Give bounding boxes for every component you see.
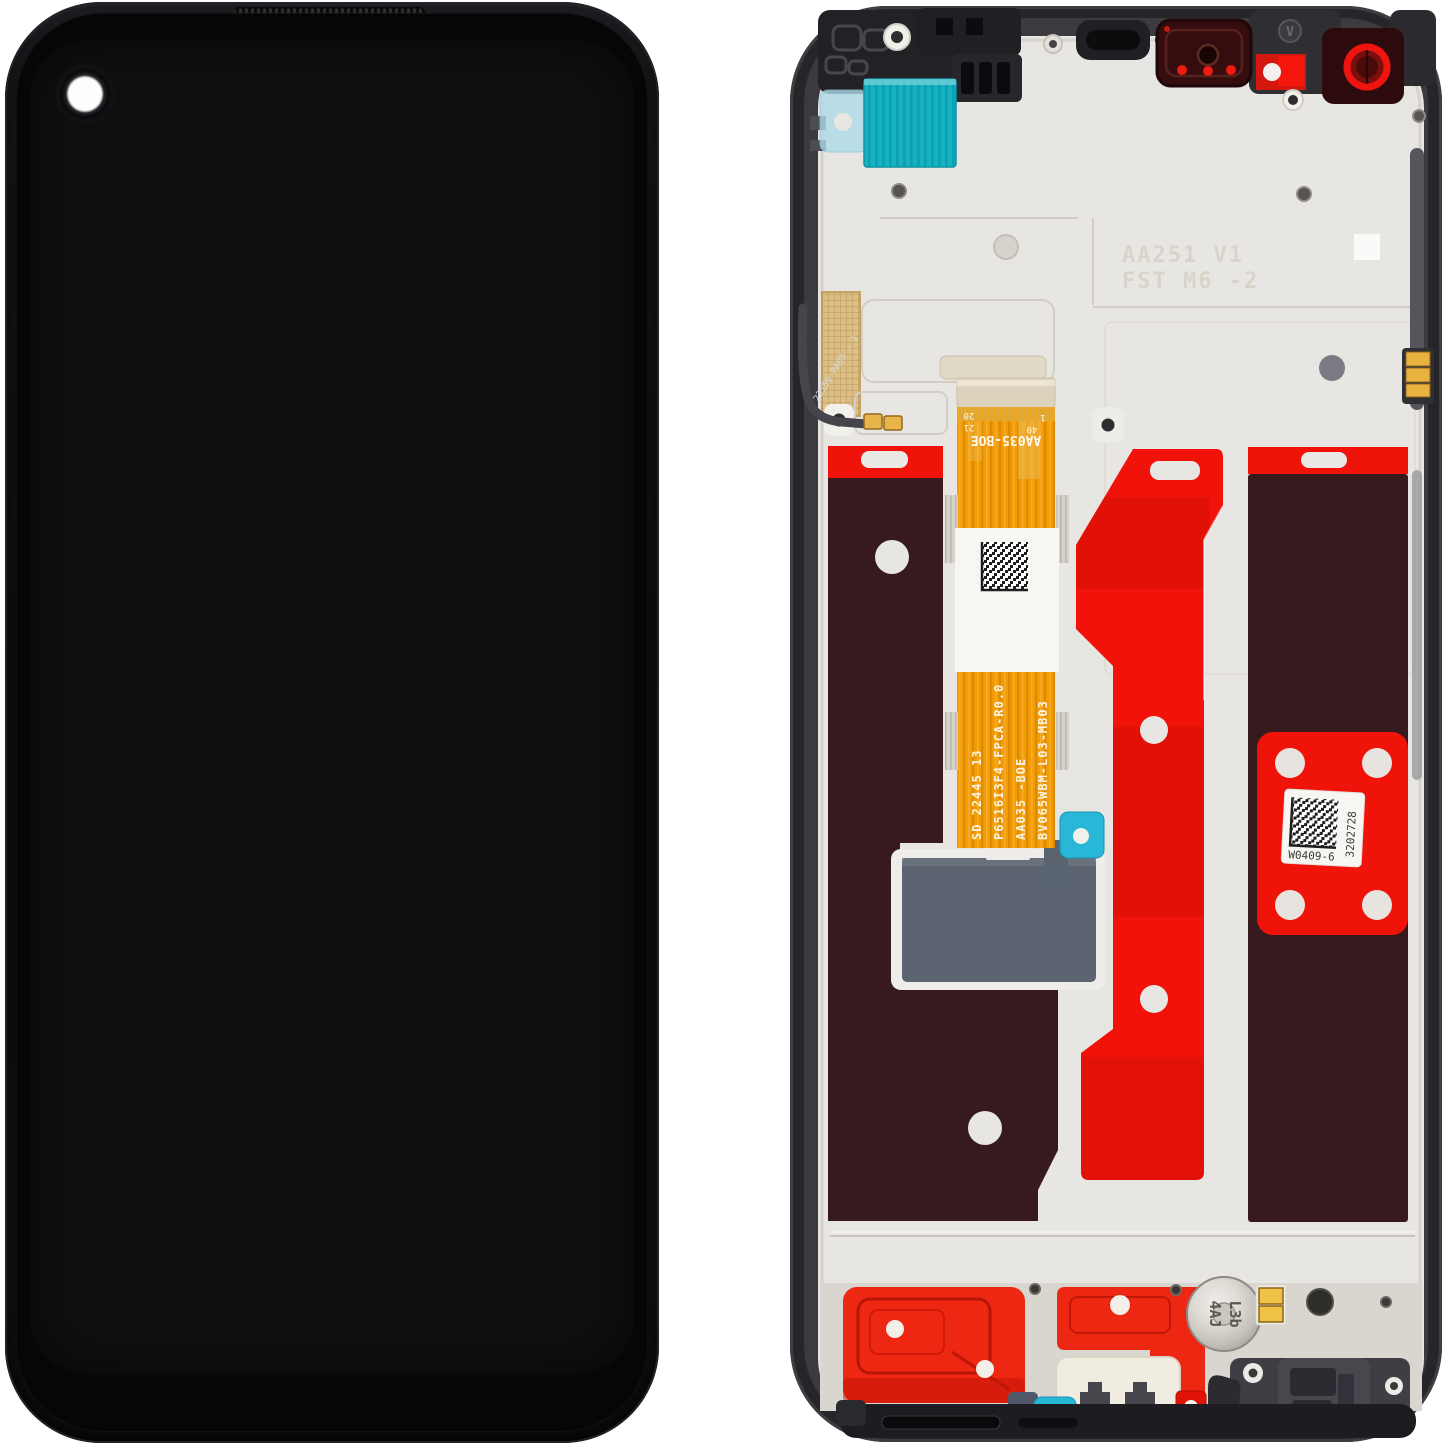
flex-serial-3: AA035 -BOE [1014, 758, 1028, 840]
flex-serial-4: BV065WBM-L03-MB03 [1036, 700, 1050, 840]
right-adhesive-panel: W0409-6 3202728 [1248, 447, 1408, 1222]
flex-pin-1: 1 [1040, 412, 1045, 422]
flex-datamatrix-label [955, 528, 1059, 672]
plate-embossed-text: AA251 V1 FST M6 -2 [1122, 243, 1259, 294]
flex-serial-1: SD 22445 13 [970, 750, 984, 840]
white-square-sticker [1354, 234, 1380, 260]
flex-stiffener-embossed [940, 356, 1046, 379]
bottom-frame-band [836, 1400, 1416, 1438]
flex-pin-21: 21 [964, 422, 975, 432]
flex-serial-2: P6516I3F4-FPCA-R0.0 [992, 684, 1006, 840]
slate-foam-pad [891, 849, 1105, 990]
motor-text-line1: L3b [1226, 1300, 1244, 1327]
frame-v-marking: V [1286, 25, 1294, 40]
gold-contacts-right [1406, 352, 1430, 397]
qr-service-label: W0409-6 3202728 [1281, 789, 1365, 867]
flex-pin-40: 40 [1027, 424, 1038, 434]
qr-label-serial: 3202728 [1344, 811, 1359, 858]
bottom-module-zone: L3b 4AJ [820, 1277, 1422, 1438]
flex-pin-20: 20 [964, 410, 975, 420]
embossed-line1: AA251 V1 [1122, 243, 1244, 268]
product-photo: V [0, 0, 1445, 1445]
back-assembly: V [0, 0, 1445, 1445]
earpiece-module [1157, 20, 1251, 86]
embossed-line2: FST M6 -2 [1122, 269, 1259, 294]
gold-contacts-motor [1256, 1285, 1286, 1325]
camera-lens-module [1322, 28, 1404, 104]
vibration-motor: L3b 4AJ [1187, 1277, 1261, 1351]
main-display-flex: AA035-BOE 1 40 20 21 SD 22445 13 P6516I3… [945, 378, 1069, 860]
qr-label-code: W0409-6 [1288, 848, 1335, 863]
motor-text-line2: 4AJ [1206, 1300, 1224, 1327]
speaker-adhesive-left [843, 1287, 1025, 1403]
bottom-dark-hole [1307, 1289, 1333, 1315]
